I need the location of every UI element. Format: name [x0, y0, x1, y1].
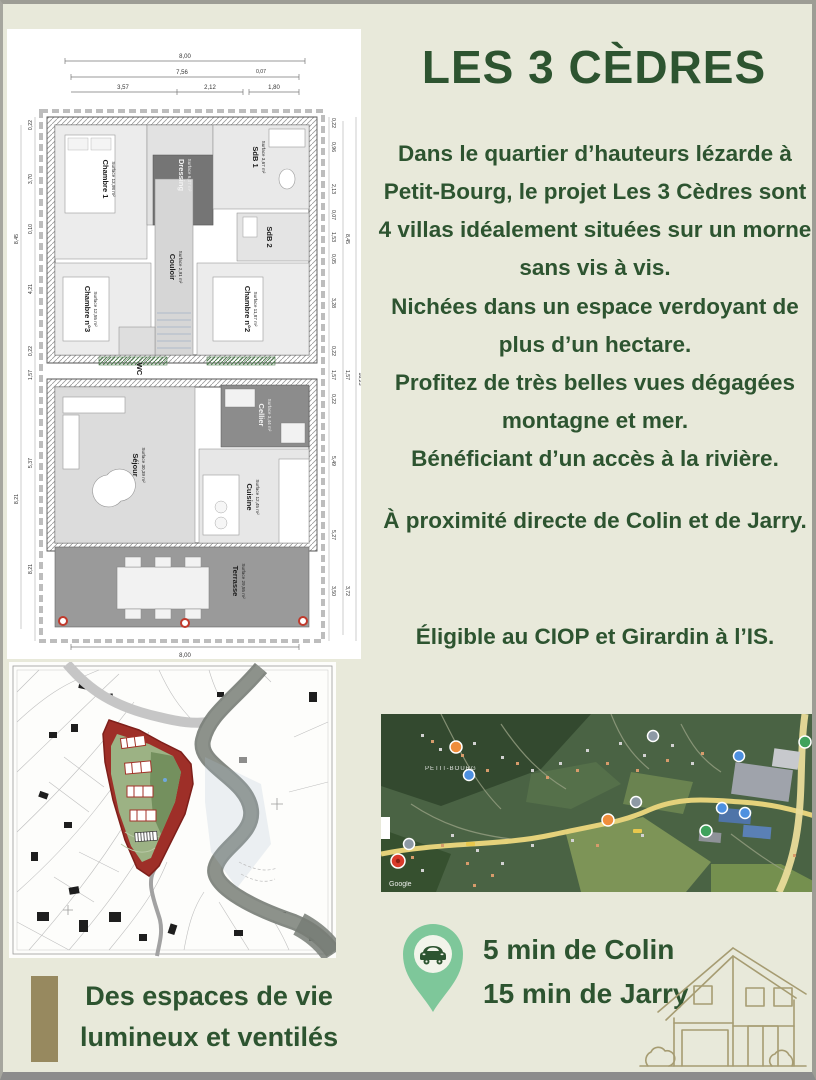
- dim-seg-2: 2,12: [204, 85, 216, 91]
- label-sejour: Séjour: [131, 453, 140, 476]
- river-paragraph: Bénéficiant d’un accès à la rivière.: [375, 440, 815, 478]
- label-terrasse: Terrasse: [231, 566, 240, 597]
- label-callout: [381, 817, 390, 839]
- label-sdb1: SdB 1: [251, 146, 260, 167]
- satellite-map-drawing: PETIT-BOURG Google: [381, 714, 815, 892]
- area-chambre-3: Surface 12,55 m²: [93, 291, 98, 327]
- label-dressing: Dressing: [177, 159, 186, 192]
- area-couloir: Surface 2,91 m²: [178, 251, 183, 284]
- dim-right: 3,28: [330, 298, 336, 308]
- flyer-page: 8,00 7,56 0,07 3,57 2,12 1,80: [0, 0, 816, 1080]
- intro-paragraph: Dans le quartier d’hauteurs lézarde à Pe…: [375, 135, 815, 287]
- dim-right: 0,07: [330, 210, 336, 220]
- label-chambre-1: Chambre 1: [101, 160, 110, 199]
- dim-inner-width: 7,56: [176, 70, 188, 76]
- car-location-pin-icon: [399, 922, 467, 1014]
- area-cellier: Surface 3,44 m²: [267, 399, 272, 432]
- area-chambre-2: Surface 11,87 m²: [253, 292, 258, 327]
- dim-right: 1,53: [330, 232, 336, 242]
- label-couloir: Couloir: [168, 254, 177, 280]
- satellite-attribution: Google: [389, 881, 412, 888]
- label-chambre-3: Chambre n°3: [83, 286, 92, 332]
- dim-bottom-width: 8,00: [179, 653, 191, 659]
- dimensions-bottom: [71, 644, 299, 650]
- area-sejour: Surface 30,39 m²: [141, 447, 146, 483]
- dim-overall-height: 18,23: [357, 373, 361, 386]
- post-marker: [299, 617, 307, 625]
- dim-left-outer: 8,21: [14, 494, 20, 504]
- tagline-block: Des espaces de vie lumineux et ventilés: [31, 976, 338, 1062]
- dim-right: 5,27: [330, 530, 336, 540]
- label-cellier: Cellier: [257, 404, 266, 427]
- floor-plan-sheet: 8,00 7,56 0,07 3,57 2,12 1,80: [7, 29, 361, 659]
- dim-left: 5,37: [28, 458, 34, 468]
- dim-left-outer: 8,45: [14, 234, 20, 244]
- planter-strip: [99, 357, 167, 365]
- dim-left: 0,22: [28, 120, 34, 130]
- dim-right: 0,05: [330, 254, 336, 264]
- tagline-line-2: lumineux et ventilés: [80, 1017, 338, 1058]
- area-sdb1: Surface 3,67 m²: [261, 141, 266, 174]
- dim-right: 0,22: [330, 346, 336, 356]
- eligibility-paragraph: Éligible au CIOP et Girardin à l’IS.: [375, 618, 815, 656]
- dim-right: 1,57: [330, 370, 336, 380]
- page-title: LES 3 CÈDRES: [373, 40, 815, 94]
- dim-overall-width: 8,00: [179, 54, 191, 60]
- dim-right-outer: 3,72: [344, 586, 350, 596]
- dim-right: 3,50: [330, 586, 336, 596]
- dim-left: 1,57: [28, 370, 34, 380]
- dim-left: 0,22: [28, 346, 34, 356]
- area-cuisine: Surface 12,45 m²: [255, 479, 260, 515]
- label-chambre-2: Chambre n°2: [243, 286, 252, 332]
- area-dressing: Surface 6,07 m²: [187, 159, 192, 192]
- satellite-map: PETIT-BOURG Google: [381, 714, 815, 892]
- proximity-paragraph: À proximité directe de Colin et de Jarry…: [375, 502, 815, 540]
- dim-seg-1: 3,57: [117, 85, 129, 91]
- dim-left: 4,21: [28, 284, 34, 294]
- dim-seg-3: 1,80: [268, 85, 280, 91]
- tagline-line-1: Des espaces de vie: [80, 976, 338, 1017]
- label-wc: WC: [135, 363, 144, 376]
- post-marker: [181, 619, 189, 627]
- dim-right: 0,96: [330, 142, 336, 152]
- planter-strip: [207, 357, 275, 365]
- living-wing: [47, 379, 317, 627]
- label-sdb2: SdB 2: [265, 226, 274, 247]
- dim-left: 8,21: [28, 564, 34, 574]
- parking-strip: [135, 831, 158, 842]
- satellite-place-label: PETIT-BOURG: [425, 766, 477, 772]
- site-map-sheet: [9, 662, 336, 958]
- area-terrasse: Surface 29,55 m²: [241, 563, 246, 599]
- dim-right-outer: 1,57: [344, 370, 350, 380]
- post-marker: [59, 617, 67, 625]
- site-map-drawing: [9, 662, 336, 958]
- dim-right: 0,22: [330, 394, 336, 404]
- dim-offset: 0,07: [256, 69, 266, 75]
- destination-pin: [391, 854, 405, 868]
- area-chambre-1: Surface 13,98 m²: [111, 161, 116, 197]
- dim-right: 0,22: [330, 118, 336, 128]
- accent-bar: [31, 976, 58, 1062]
- label-cuisine: Cuisine: [245, 483, 254, 510]
- house-illustration: [636, 926, 811, 1079]
- dim-right-outer: 8,45: [344, 234, 350, 244]
- house-icon: [636, 926, 811, 1074]
- dim-left: 0,10: [28, 224, 34, 234]
- setting-paragraph: Nichées dans un espace verdoyant de plus…: [375, 288, 815, 440]
- dim-right: 2,13: [330, 184, 336, 194]
- dim-left: 3,70: [28, 174, 34, 184]
- floor-plan-drawing: 8,00 7,56 0,07 3,57 2,12 1,80: [7, 29, 361, 659]
- dim-right: 5,49: [330, 456, 336, 466]
